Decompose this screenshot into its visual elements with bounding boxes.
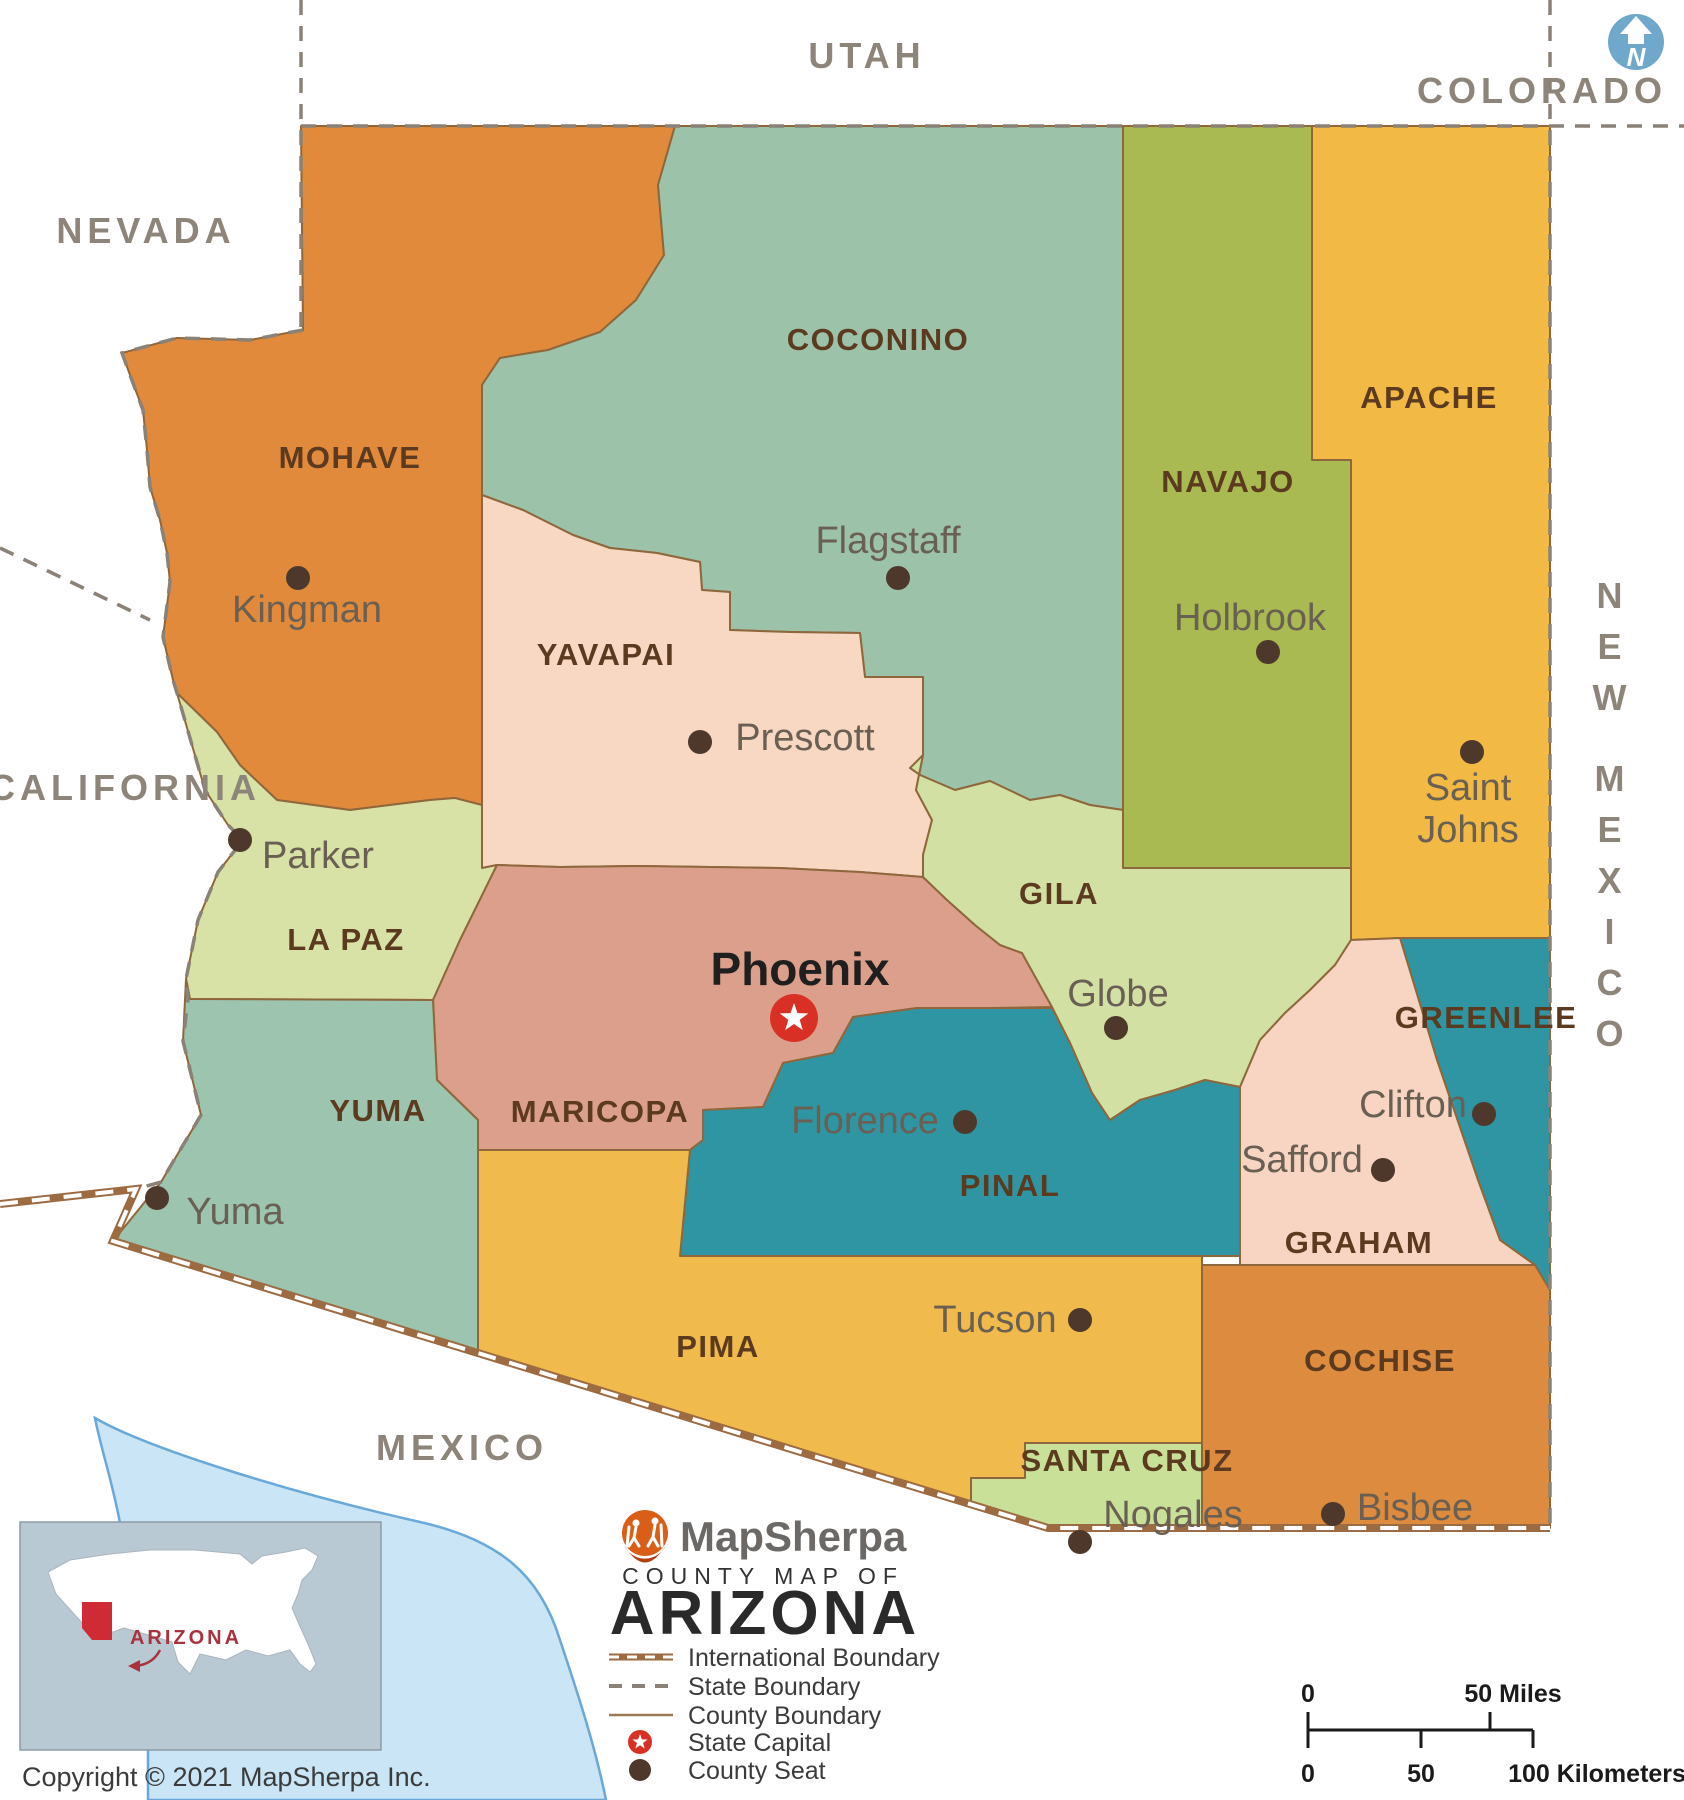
scale-km-zero: 0 [1301, 1760, 1315, 1788]
copyright-text: Copyright © 2021 MapSherpa Inc. [22, 1762, 431, 1792]
county-seat-dot-saint-johns [1460, 740, 1484, 764]
city-label-yuma-city: Yuma [186, 1191, 284, 1233]
scale-km-label: 100 Kilometers [1508, 1760, 1684, 1788]
county-label-greenlee: GREENLEE [1395, 1000, 1578, 1035]
capital-label-phoenix: Phoenix [711, 943, 890, 995]
county-label-gila: GILA [1019, 876, 1099, 911]
usa-inset-map: ARIZONA [20, 1522, 381, 1750]
scale-km-mid: 50 [1407, 1760, 1435, 1788]
neighbor-label-new-mexico-letter: E [1597, 809, 1626, 850]
county-seat-dot-flagstaff [886, 566, 910, 590]
city-label-holbrook: Holbrook [1174, 597, 1327, 639]
city-label-parker: Parker [262, 835, 374, 877]
scale-miles-zero: 0 [1301, 1680, 1315, 1708]
city-label-kingman: Kingman [232, 589, 382, 631]
city-label-flagstaff: Flagstaff [815, 520, 960, 562]
legend-item-label: County Seat [688, 1757, 826, 1785]
county-label-maricopa: MARICOPA [511, 1094, 689, 1129]
county-seat-dot-florence [953, 1110, 977, 1134]
city-label-saint-johns-line2: Johns [1417, 809, 1518, 851]
county-seat-dot-yuma-city [145, 1186, 169, 1210]
neighbor-label-utah: UTAH [808, 35, 925, 76]
county-label-yavapai: YAVAPAI [537, 637, 676, 672]
legend-item-label: State Capital [688, 1729, 831, 1757]
neighbor-label-nevada: NEVADA [56, 210, 235, 251]
city-label-nogales: Nogales [1103, 1494, 1242, 1536]
neighbor-label-new-mexico-letter: O [1595, 1013, 1628, 1054]
city-label-safford: Safford [1241, 1139, 1363, 1181]
city-label-saint-johns-line1: Saint [1425, 767, 1512, 809]
county-seat-dot-clifton [1472, 1102, 1496, 1126]
county-seat-dot-kingman [286, 566, 310, 590]
neighbor-label-new-mexico-letter: W [1593, 677, 1632, 718]
legend-item-label: County Boundary [688, 1702, 882, 1730]
legend-seat-icon [629, 1759, 651, 1781]
neighbor-label-new-mexico-letter: M [1595, 758, 1630, 799]
county-label-cochise: COCHISE [1304, 1343, 1456, 1378]
county-label-navajo: NAVAJO [1161, 464, 1295, 499]
city-label-globe: Globe [1067, 973, 1168, 1015]
county-seat-dot-safford [1371, 1158, 1395, 1182]
neighbor-label-california: CALIFORNIA [0, 767, 261, 808]
county-label-yuma: YUMA [329, 1093, 426, 1128]
county-label-mohave: MOHAVE [279, 440, 422, 475]
county-seat-dot-globe [1104, 1016, 1128, 1040]
county-seat-dot-holbrook [1256, 640, 1280, 664]
neighbor-label-new-mexico-letter: C [1597, 962, 1628, 1003]
neighbor-label-new-mexico-letter: N [1597, 575, 1628, 616]
map-title: ARIZONA [610, 1579, 920, 1648]
neighbor-label-new-mexico-letter: I [1604, 911, 1619, 952]
county-label-pinal: PINAL [960, 1168, 1061, 1203]
county-seat-dot-nogales [1068, 1530, 1092, 1554]
county-seat-dot-bisbee [1321, 1502, 1345, 1526]
city-label-prescott: Prescott [735, 717, 875, 759]
city-label-clifton: Clifton [1359, 1084, 1467, 1126]
legend-item-label: State Boundary [688, 1673, 861, 1701]
inset-arizona-label: ARIZONA [130, 1627, 242, 1649]
county-label-pima: PIMA [676, 1329, 760, 1364]
county-label-la-paz: LA PAZ [287, 922, 405, 957]
arizona-county-map: MOHAVECOCONINONAVAJOAPACHEYAVAPAILA PAZM… [0, 0, 1684, 1800]
city-label-bisbee: Bisbee [1357, 1487, 1473, 1529]
city-label-tucson: Tucson [933, 1299, 1056, 1341]
neighbor-label-new-mexico-letter: E [1597, 626, 1626, 667]
north-arrow-label: N [1627, 42, 1647, 72]
county-label-apache: APACHE [1360, 380, 1498, 415]
neighbor-label-mexico: MEXICO [376, 1427, 548, 1468]
neighbor-label-colorado: COLORADO [1417, 70, 1667, 111]
city-label-florence: Florence [791, 1100, 939, 1142]
county-label-graham: GRAHAM [1285, 1225, 1434, 1260]
legend-item-label: International Boundary [688, 1644, 940, 1672]
county-label-santa-cruz: SANTA CRUZ [1020, 1443, 1233, 1478]
county-label-coconino: COCONINO [787, 322, 970, 357]
county-seat-dot-parker [228, 828, 252, 852]
county-seat-dot-prescott [688, 730, 712, 754]
brand-name: MapSherpa [680, 1513, 907, 1560]
county-seat-dot-tucson [1068, 1308, 1092, 1332]
scale-miles-label: 50 Miles [1464, 1680, 1561, 1708]
neighbor-label-new-mexico-letter: X [1597, 860, 1626, 901]
